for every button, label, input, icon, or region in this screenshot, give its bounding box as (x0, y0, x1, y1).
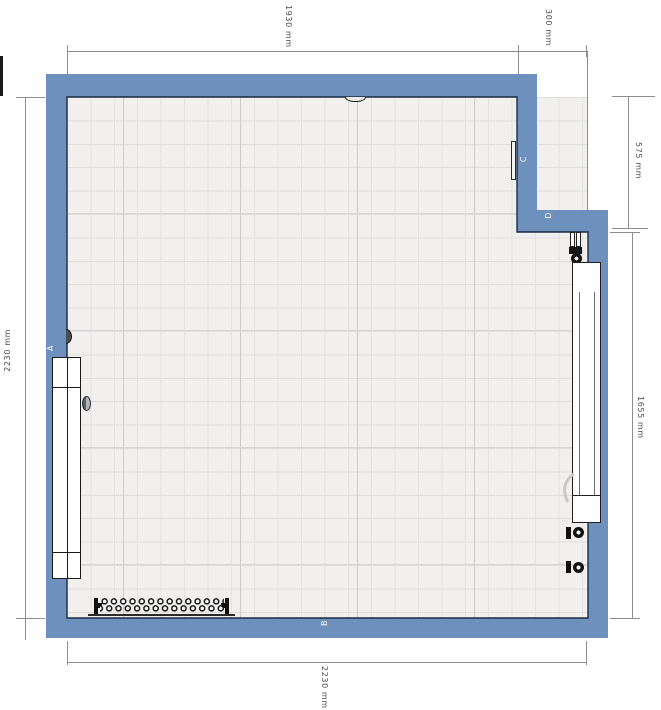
flush-wall-switch[interactable] (511, 141, 516, 180)
radiator-valve-knob-icon[interactable] (573, 562, 584, 573)
door-panel-line (67, 358, 68, 578)
wall-inner-outline (67, 97, 588, 618)
door-handle[interactable] (82, 396, 91, 411)
radiator-valve[interactable] (566, 527, 571, 539)
dimension-label: 2230 mm (319, 666, 329, 709)
column-radiator[interactable] (88, 596, 235, 617)
dimension-label: 300 mm (543, 9, 553, 46)
wall-label-b: B (320, 620, 329, 626)
dimension-label: 1930 mm (283, 5, 293, 48)
radiator-valve-knob-icon[interactable] (573, 527, 584, 538)
towel-radiator[interactable] (572, 292, 601, 496)
wall-label-c: C (519, 156, 528, 162)
dimension-label: 575 mm (633, 142, 643, 179)
wall-label-a: A (46, 345, 55, 351)
dimension-label: 2230 mm (3, 329, 13, 372)
radiator-rail-line (594, 292, 595, 496)
dimension-label: 1655 mm (635, 396, 645, 439)
radiator-valve[interactable] (566, 561, 571, 573)
radiator-rail-line (579, 292, 580, 496)
radiator-baseline (88, 614, 235, 616)
radiator-bracket (225, 598, 229, 614)
radiator-columns-row (100, 604, 224, 613)
radiator-pipe (570, 232, 575, 247)
wall-label-d: D (544, 212, 553, 219)
sliding-door[interactable] (52, 357, 81, 579)
radiator-pipe (576, 232, 581, 247)
towel-radiator-header[interactable] (572, 262, 601, 293)
door-frame-line (53, 552, 80, 553)
rotate-handle-icon[interactable] (556, 470, 580, 506)
door-frame-line (53, 387, 80, 388)
floor-plan-canvas[interactable]: A B C D 19 (0, 0, 661, 710)
